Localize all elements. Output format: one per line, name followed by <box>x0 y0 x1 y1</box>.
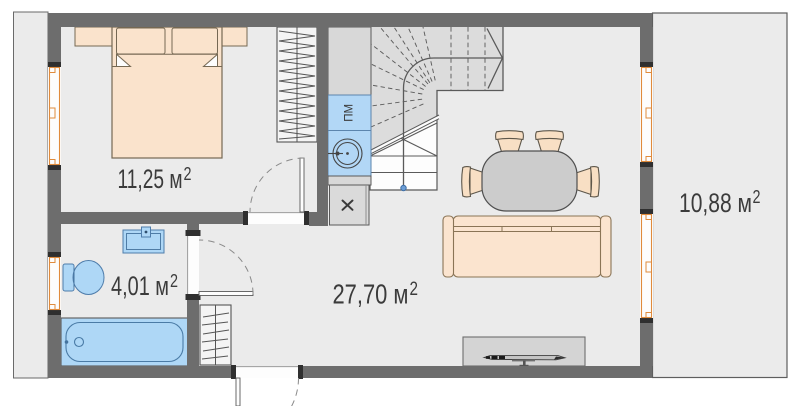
svg-text:11,25 м: 11,25 м <box>118 164 183 194</box>
svg-text:2: 2 <box>184 164 192 184</box>
svg-text:2: 2 <box>170 271 178 291</box>
svg-text:27,70 м: 27,70 м <box>333 279 409 310</box>
svg-text:4,01 м: 4,01 м <box>111 271 169 301</box>
svg-text:10,88 м: 10,88 м <box>679 188 752 218</box>
svg-text:2: 2 <box>753 187 761 207</box>
svg-text:ПМ: ПМ <box>344 104 356 122</box>
svg-text:2: 2 <box>410 279 419 300</box>
